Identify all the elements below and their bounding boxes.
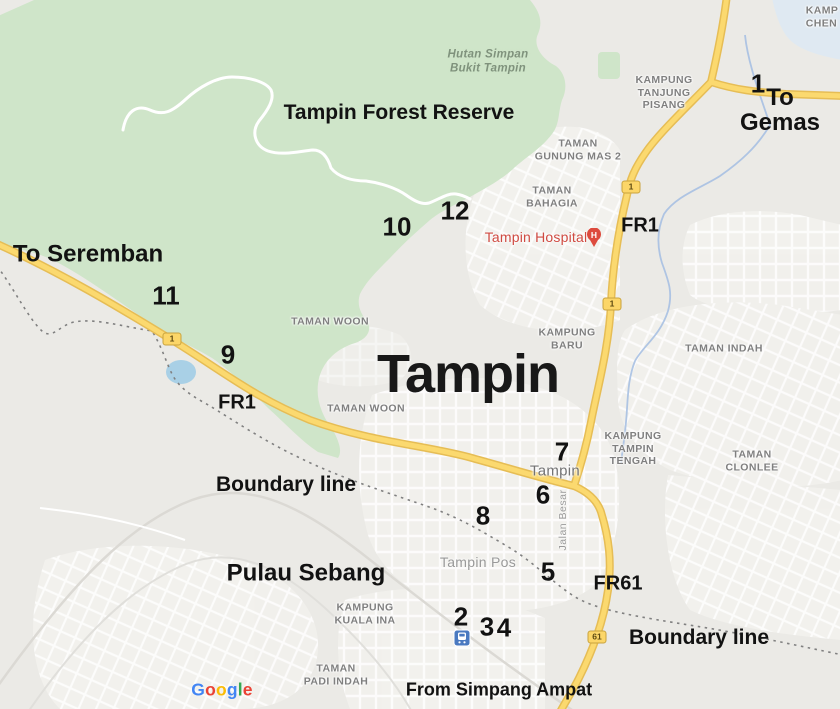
route-1-shield: 1 bbox=[603, 298, 622, 311]
google-logo-letter: g bbox=[227, 680, 238, 700]
small-green-patch bbox=[598, 52, 620, 79]
google-logo-letter: o bbox=[205, 680, 216, 700]
google-logo-letter: e bbox=[243, 680, 253, 700]
google-logo-letter: o bbox=[216, 680, 227, 700]
route-1-shield: 1 bbox=[163, 333, 182, 346]
svg-text:H: H bbox=[591, 230, 597, 240]
hospital-pin-icon[interactable]: H bbox=[587, 228, 602, 248]
route-1-shield: 1 bbox=[622, 181, 641, 194]
google-logo-letter: G bbox=[191, 680, 205, 700]
route-61-shield: 61 bbox=[588, 631, 607, 644]
district-tint-polygon bbox=[772, 0, 840, 60]
basemap-layers bbox=[0, 0, 840, 709]
google-logo[interactable]: Google bbox=[191, 680, 252, 701]
train-station-icon[interactable] bbox=[454, 630, 471, 647]
map-canvas[interactable]: Hutan Simpan Bukit Tampin KAMPUNG TANJUN… bbox=[0, 0, 840, 709]
